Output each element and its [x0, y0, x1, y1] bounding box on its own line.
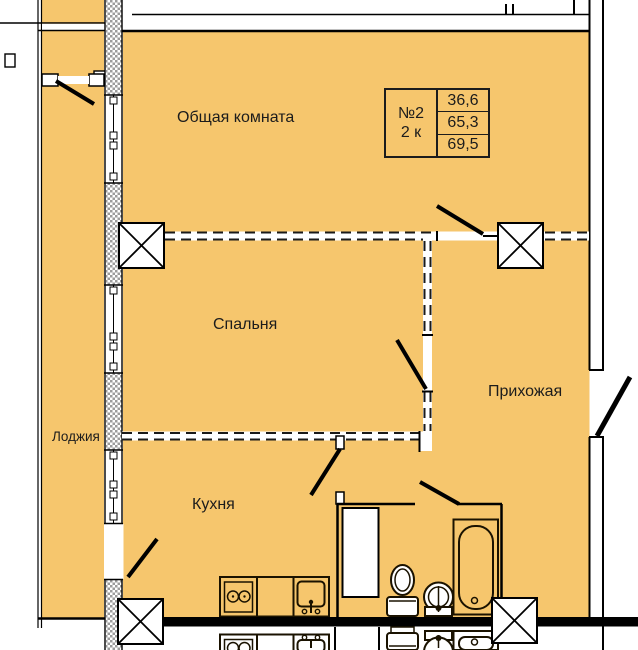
balcony-door-opening [104, 524, 124, 580]
ventilation-shaft [119, 223, 164, 268]
living-room-label: Общая комната [177, 109, 294, 127]
floor-plan-canvas [0, 0, 638, 650]
unit-info-table: №2 2 к 36,6 65,3 69,5 [384, 88, 490, 158]
kitchen-label: Кухня [192, 496, 235, 514]
glazing-post [5, 54, 15, 67]
loggia-label: Лоджия [52, 429, 100, 444]
ventilation-shaft [118, 599, 163, 644]
area-total: 69,5 [438, 135, 488, 156]
floor-plan: Общая комната Спальня Прихожая Кухня Лод… [0, 0, 638, 650]
bathroom-door-clearance [343, 508, 379, 597]
loggia-top-wall [38, 24, 105, 31]
bedroom-label: Спальня [213, 316, 277, 334]
unit-number: №2 [398, 104, 424, 123]
washbasin [424, 583, 453, 617]
area-usable: 65,3 [438, 112, 488, 134]
right-exterior-wall [589, 0, 604, 650]
hallway-label: Прихожая [488, 383, 562, 401]
partition-bedroom [422, 236, 433, 441]
ventilation-shaft [498, 223, 543, 268]
bottom-wall [122, 617, 638, 627]
unit-rooms-type: 2 к [401, 123, 421, 142]
unit-areas: 36,6 65,3 69,5 [438, 90, 488, 156]
ventilation-shaft [492, 598, 537, 643]
area-living: 36,6 [438, 90, 488, 112]
lower-apartment-fixtures [220, 627, 498, 650]
top-exterior-wall [122, 0, 590, 31]
unit-id-cell: №2 2 к [386, 90, 438, 156]
